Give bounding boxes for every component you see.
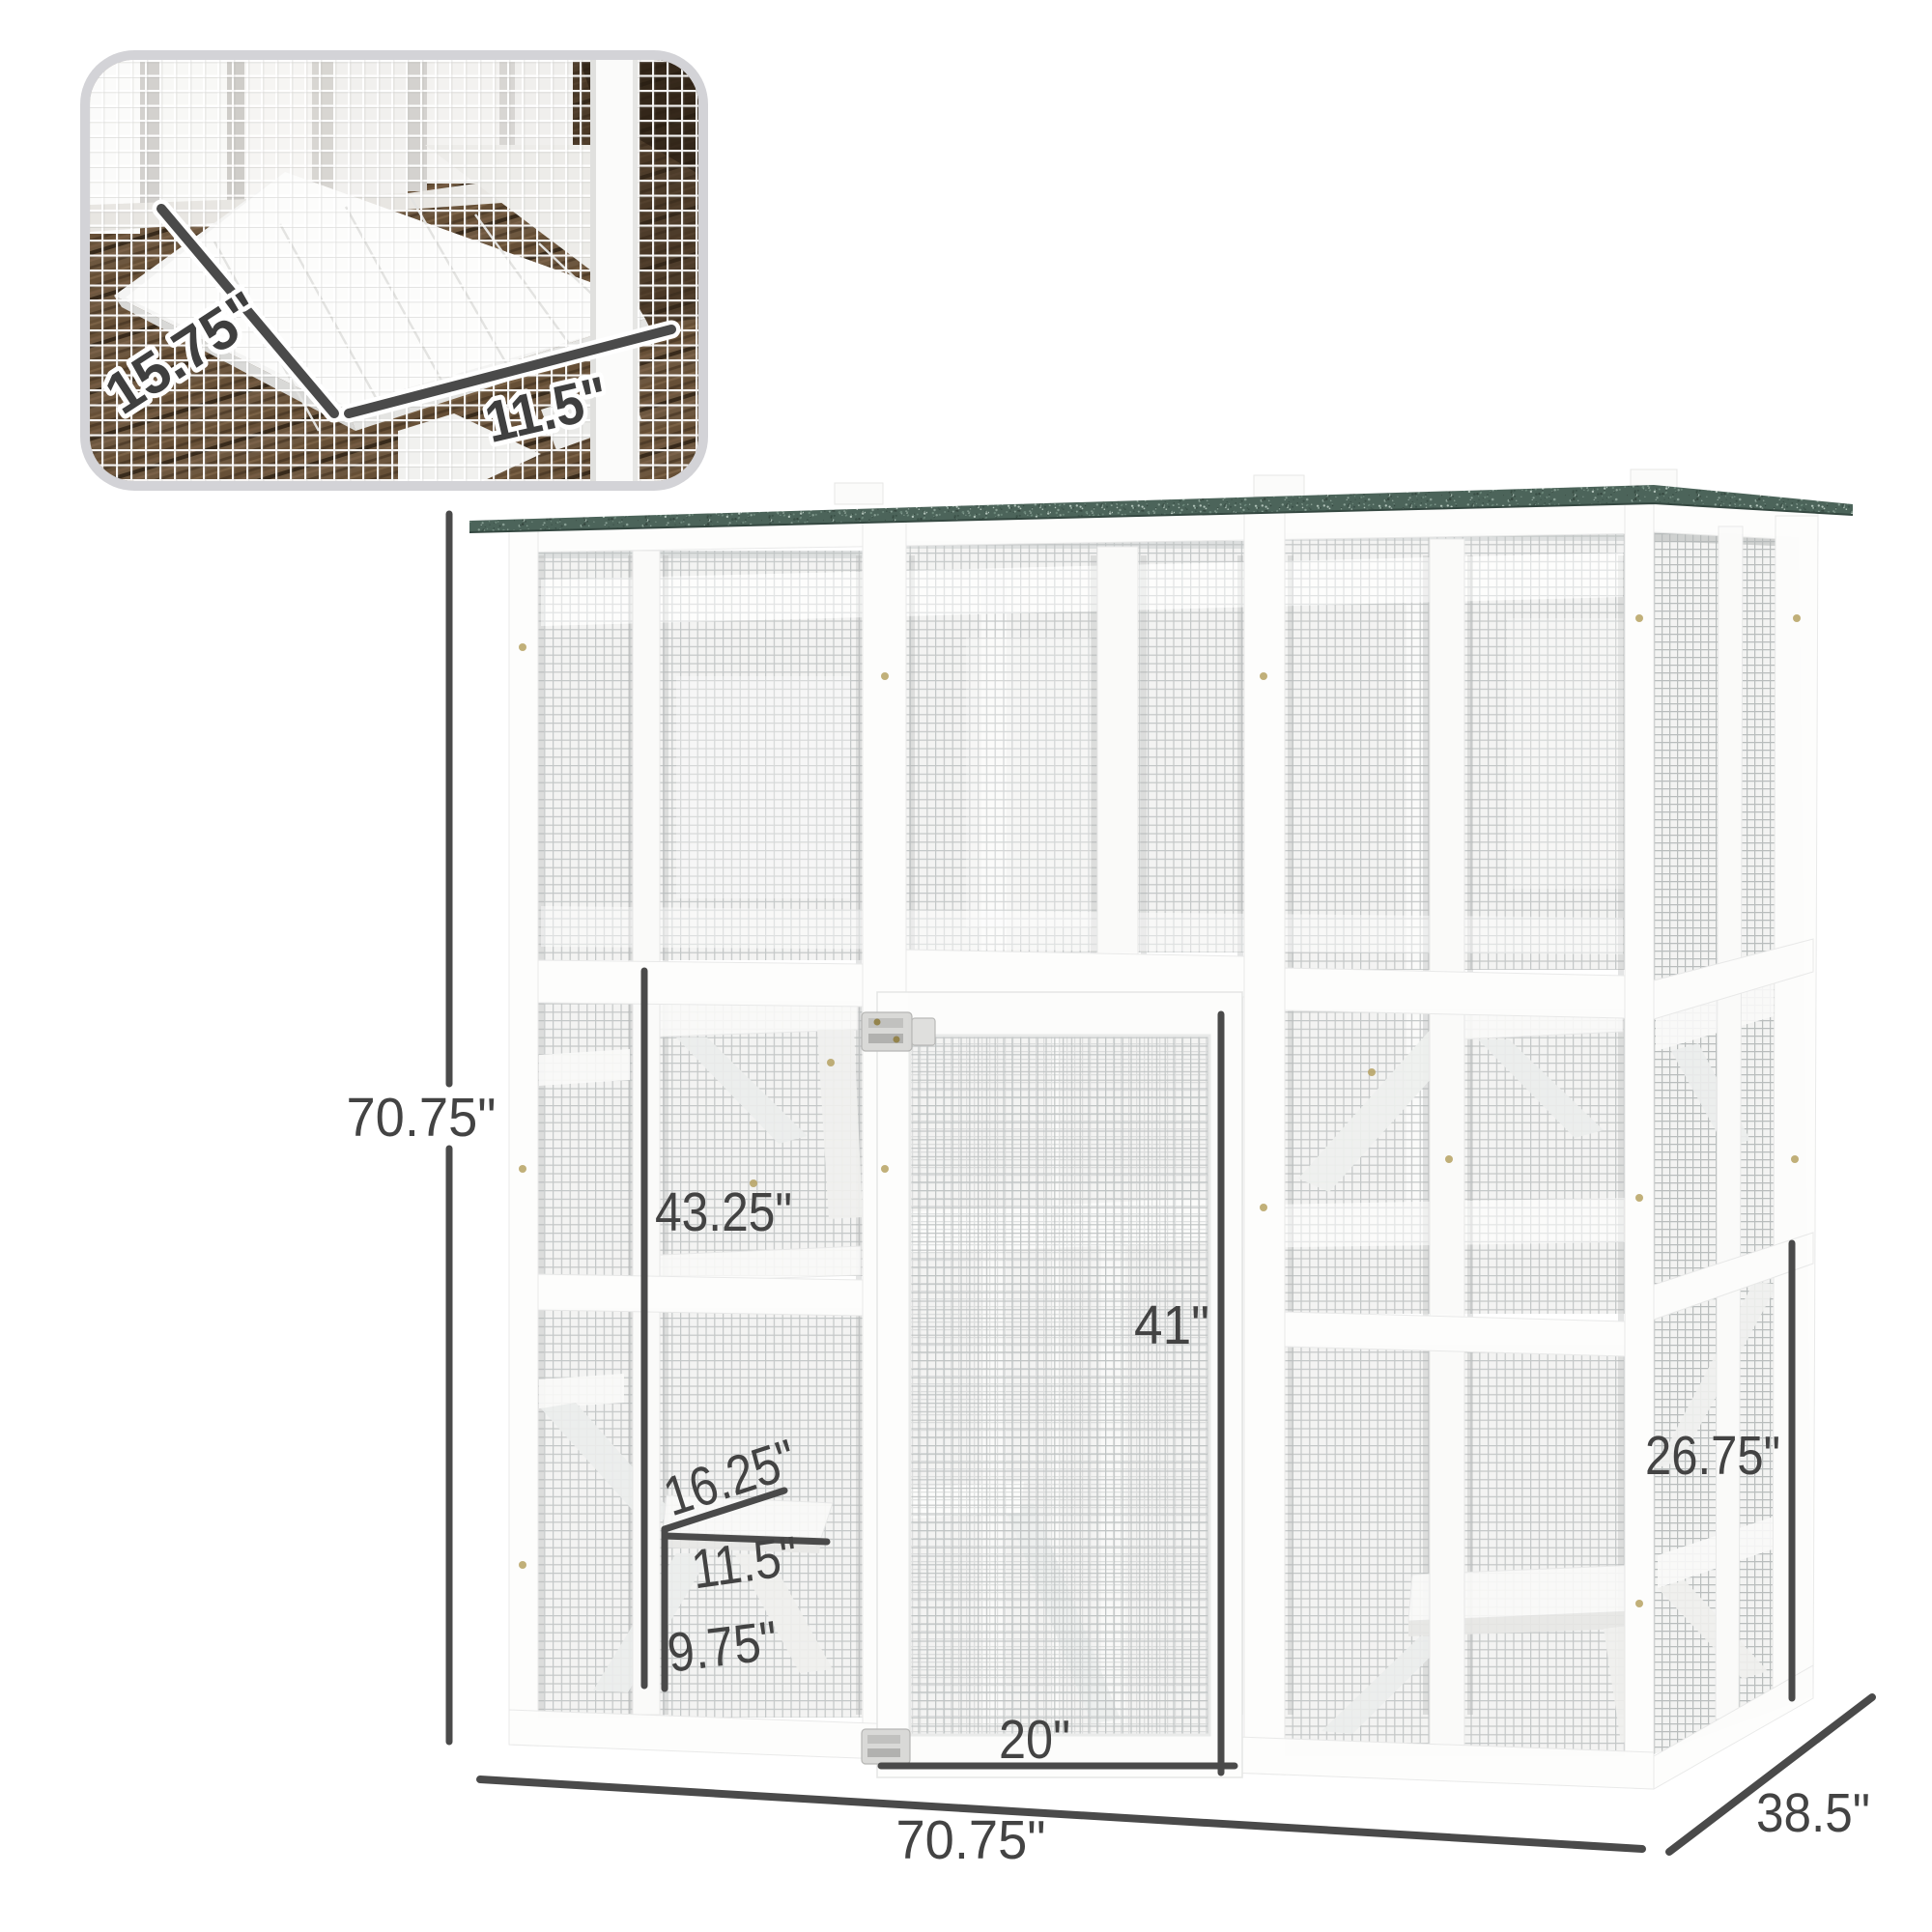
svg-text:41": 41" xyxy=(1134,1294,1209,1356)
svg-text:43.25": 43.25" xyxy=(655,1181,792,1243)
svg-text:26.75": 26.75" xyxy=(1645,1425,1780,1487)
svg-text:20": 20" xyxy=(999,1709,1070,1771)
svg-text:70.75": 70.75" xyxy=(347,1087,497,1149)
svg-text:38.5": 38.5" xyxy=(1756,1782,1870,1844)
svg-text:70.75": 70.75" xyxy=(896,1809,1046,1871)
